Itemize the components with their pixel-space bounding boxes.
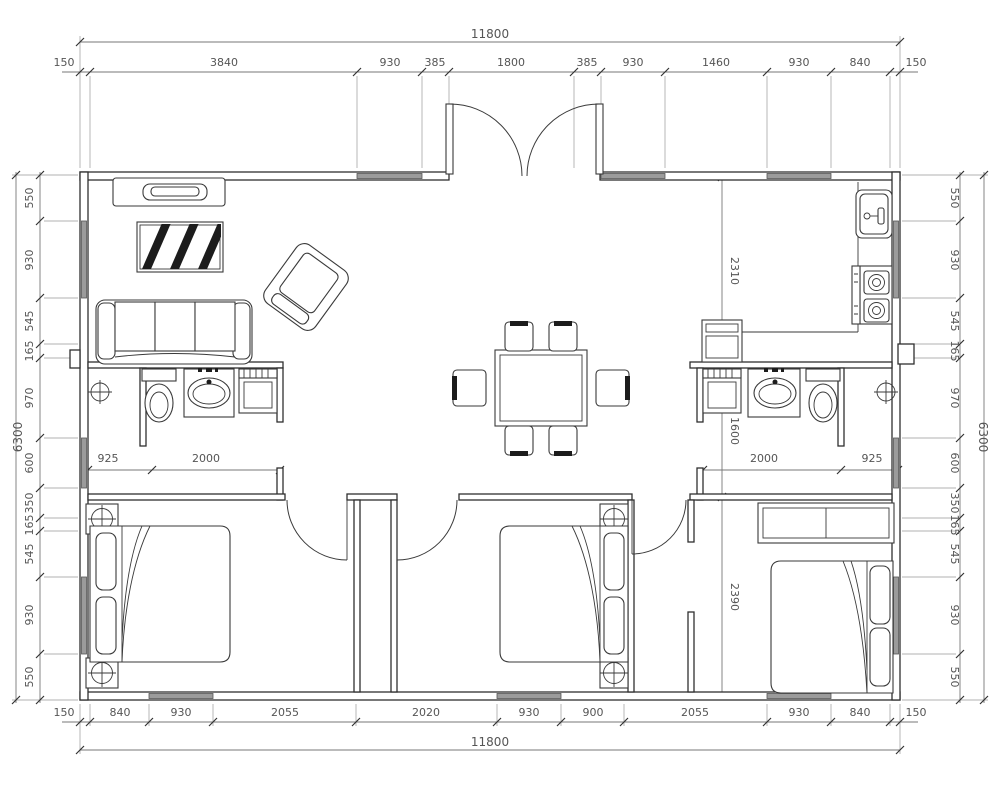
stove: [852, 266, 892, 324]
dining-chair: [549, 321, 577, 351]
floor-plan-page: 11800 150 3840 930 385 1800 385 930 1460…: [0, 0, 1000, 800]
pillow: [96, 533, 116, 590]
hatched-rug: [137, 222, 227, 272]
dim-label: 1800: [497, 56, 525, 69]
dining-chair: [505, 321, 533, 351]
door-swing-arc: [527, 104, 599, 176]
swing-door: [397, 500, 457, 560]
dim-label: 2000: [192, 452, 220, 465]
dim-label: 6300: [976, 422, 990, 453]
bed: [500, 526, 628, 662]
tall-cabinet: [702, 320, 742, 362]
armchair: [260, 240, 352, 335]
dining-chair: [549, 426, 577, 456]
dim-label: 930: [171, 706, 192, 719]
dim-label: 545: [948, 544, 961, 565]
swing-door: [287, 500, 347, 560]
dim-label: 930: [948, 605, 961, 626]
dim-label: 550: [948, 188, 961, 209]
dim-label: 545: [23, 544, 36, 565]
dim-label: 150: [906, 706, 927, 719]
pillow: [604, 597, 624, 654]
dining-chair: [452, 370, 486, 406]
window: [601, 174, 665, 179]
dim-label: 150: [54, 706, 75, 719]
dim-label: 165: [23, 341, 36, 362]
dim-label: 925: [98, 452, 119, 465]
dim-label: 930: [23, 250, 36, 271]
dim-label: 6300: [11, 422, 25, 453]
faucet: [878, 208, 884, 224]
dining-chair: [505, 426, 533, 456]
wall-pier-right: [898, 344, 914, 364]
door-leaf: [596, 104, 603, 174]
kitchen-counter-edge: [740, 182, 858, 362]
dim-label: 2055: [681, 706, 709, 719]
bathroom-right: [703, 368, 898, 422]
floor-drain: [88, 380, 112, 404]
dim-label: 350: [23, 493, 36, 514]
dim-label: 2055: [271, 706, 299, 719]
dim-label: 600: [948, 453, 961, 474]
living-room: [96, 178, 352, 364]
dim-label: 970: [23, 388, 36, 409]
dim-label: 11800: [471, 27, 509, 41]
dim-label: 930: [380, 56, 401, 69]
sofa-cushion: [155, 302, 195, 351]
dim-label: 550: [948, 667, 961, 688]
dim-label: 930: [789, 706, 810, 719]
bed: [90, 526, 230, 662]
dim-label: 2310: [728, 257, 741, 285]
window: [82, 438, 87, 488]
dim-label: 385: [425, 56, 446, 69]
dim-label: 550: [23, 667, 36, 688]
dim-label: 150: [54, 56, 75, 69]
dim-label: 1460: [702, 56, 730, 69]
dim-label: 550: [23, 188, 36, 209]
dim-label: 840: [110, 706, 131, 719]
door-swing-arc: [450, 104, 522, 176]
dim-label: 165: [23, 515, 36, 536]
wardrobe: [758, 503, 894, 543]
wash-basin: [184, 368, 234, 417]
dim-label: 930: [623, 56, 644, 69]
bathroom-left: [88, 368, 277, 422]
dim-label: 900: [583, 706, 604, 719]
sofa-cushion: [115, 302, 155, 351]
dim-label: 385: [577, 56, 598, 69]
dim-label: 2000: [750, 452, 778, 465]
dim-label: 2390: [728, 583, 741, 611]
bedroom-left: [86, 500, 347, 688]
window: [767, 694, 831, 699]
wall-pier-left: [70, 350, 80, 368]
dim-label: 545: [23, 311, 36, 332]
dim-label: 840: [850, 706, 871, 719]
window: [894, 221, 899, 298]
bedroom-right: [758, 503, 894, 693]
dim-label: 930: [948, 250, 961, 271]
dining-table: [495, 350, 587, 426]
kitchen-sink: [856, 190, 892, 238]
dining-chair: [596, 370, 630, 406]
dim-label: 3840: [210, 56, 238, 69]
dim-label: 545: [948, 311, 961, 332]
pillow: [96, 597, 116, 654]
bed: [771, 561, 893, 693]
dim-label: 930: [23, 605, 36, 626]
dim-label: 150: [906, 56, 927, 69]
dim-label: 1600: [728, 417, 741, 445]
dim-label: 165: [948, 341, 961, 362]
window: [894, 438, 899, 488]
window: [357, 174, 422, 179]
dim-label: 600: [23, 453, 36, 474]
sofa-armrest: [98, 303, 115, 359]
sofa-armrest: [233, 303, 250, 359]
dim-label: 970: [948, 388, 961, 409]
dim-label: 165: [948, 515, 961, 536]
pillow: [604, 533, 624, 590]
bedroom-middle: [397, 500, 628, 688]
window: [497, 694, 561, 699]
toilet: [142, 369, 176, 422]
dim-label: 11800: [471, 735, 509, 749]
pillow: [870, 628, 890, 686]
floor-plan-drawing: 11800 150 3840 930 385 1800 385 930 1460…: [0, 0, 1000, 800]
window: [149, 694, 213, 699]
dim-label: 925: [862, 452, 883, 465]
window: [767, 174, 831, 179]
wash-basin: [748, 368, 800, 417]
window: [82, 221, 87, 298]
pillow: [870, 566, 890, 624]
dim-label: 2020: [412, 706, 440, 719]
dim-label: 930: [519, 706, 540, 719]
washer-cabinet: [703, 369, 741, 413]
entry-double-door: [446, 104, 603, 176]
sofa: [96, 300, 252, 364]
door-leaf: [446, 104, 453, 174]
washer-cabinet: [239, 369, 277, 413]
sofa-cushion: [195, 302, 235, 351]
dim-label: 840: [850, 56, 871, 69]
window: [82, 577, 87, 654]
dining-area: [452, 321, 630, 456]
window: [894, 577, 899, 654]
dim-label: 930: [789, 56, 810, 69]
dim-label: 350: [948, 493, 961, 514]
hall-swing-door: [632, 500, 686, 554]
toilet: [806, 369, 840, 422]
